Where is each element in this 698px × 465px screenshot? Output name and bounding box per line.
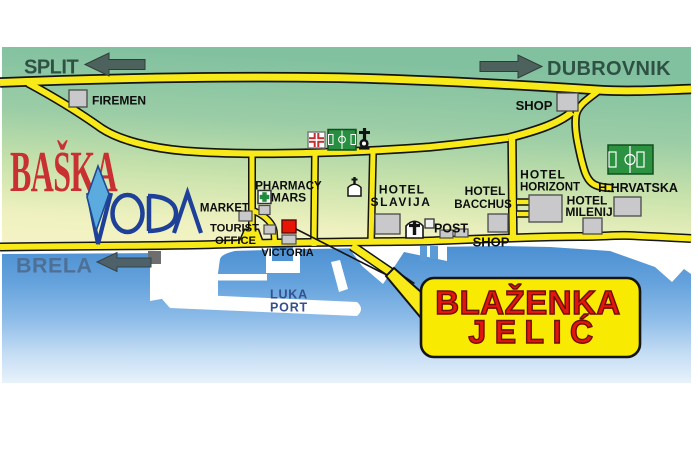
svg-text:MARS: MARS bbox=[271, 191, 306, 205]
svg-text:H.HRVATSKA: H.HRVATSKA bbox=[598, 181, 678, 195]
svg-text:BRELA: BRELA bbox=[16, 254, 93, 278]
svg-text:BACCHUS: BACCHUS bbox=[454, 199, 512, 211]
svg-text:POST: POST bbox=[434, 222, 468, 236]
svg-text:PORT: PORT bbox=[270, 301, 308, 315]
svg-text:LUKA: LUKA bbox=[270, 288, 308, 302]
svg-text:HORIZONT: HORIZONT bbox=[520, 182, 580, 194]
svg-text:HOTEL: HOTEL bbox=[465, 184, 506, 198]
svg-text:OFFICE: OFFICE bbox=[215, 235, 257, 247]
svg-text:MARKET: MARKET bbox=[200, 203, 249, 215]
svg-text:TOURIST: TOURIST bbox=[210, 223, 259, 235]
svg-text:SHOP: SHOP bbox=[516, 98, 553, 113]
svg-text:SHOP: SHOP bbox=[473, 235, 510, 250]
svg-text:HOTEL: HOTEL bbox=[520, 168, 566, 182]
svg-text:VICTORIA: VICTORIA bbox=[261, 247, 313, 259]
svg-text:DUBROVNIK: DUBROVNIK bbox=[547, 58, 671, 80]
svg-text:MILENIJ: MILENIJ bbox=[565, 205, 612, 219]
svg-text:SLAVIJA: SLAVIJA bbox=[371, 195, 432, 209]
svg-text:JELIĆ: JELIĆ bbox=[468, 314, 601, 350]
svg-text:FIREMEN: FIREMEN bbox=[92, 94, 146, 108]
svg-text:SPLIT: SPLIT bbox=[24, 57, 78, 79]
